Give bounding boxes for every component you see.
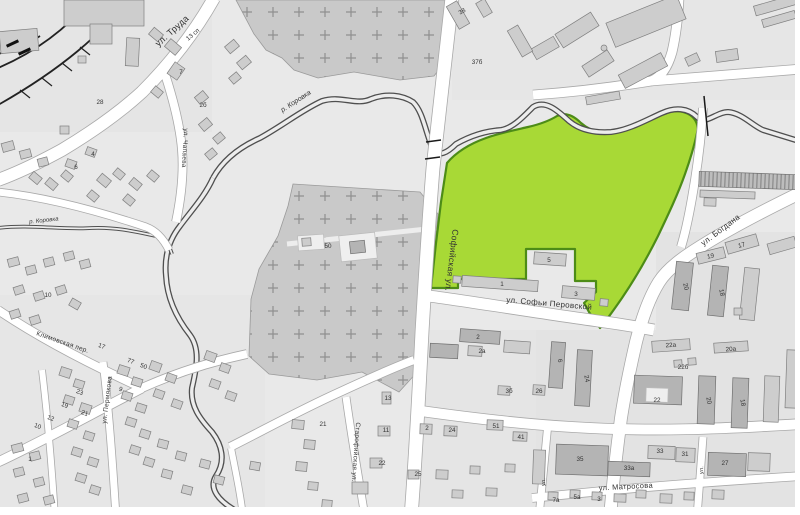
building-number: 22б [678,363,689,371]
building [614,494,626,502]
building-number: 1 [500,281,504,288]
building [352,482,368,494]
building-number: 7 [179,69,183,76]
building-number: 22а [665,342,676,350]
building [470,466,480,474]
building [636,490,646,498]
building-number: 10 [44,292,52,299]
building-number: 21 [319,421,327,428]
building [125,38,139,67]
building [600,299,609,307]
building [660,494,672,503]
building [349,240,365,254]
building-number: 4 [91,151,95,158]
building [699,171,796,189]
building-number: 26 [535,388,543,395]
building-number: 3 [574,291,578,298]
building-number: 6 [74,164,78,171]
building-number: 33а [624,465,635,472]
building-number: 25 [414,471,422,478]
building [748,453,771,472]
building [304,440,316,450]
building-number: 37б [472,58,483,66]
building [548,342,565,389]
building [296,462,308,472]
building-number: 1 [28,456,32,463]
building-number: 5 [547,257,551,264]
building [452,490,463,498]
building-number: 24 [448,427,456,434]
building [504,340,531,354]
building [60,126,69,134]
street-label: ул. [541,478,547,487]
building-number: 31 [681,451,689,458]
building-number: 5а [573,494,581,501]
building [430,343,459,358]
building-number: 41 [517,434,525,441]
building [0,28,39,53]
building [302,238,312,247]
building-number: 2б [199,101,207,109]
building [486,488,497,496]
building [292,419,305,429]
building [763,376,780,422]
building-number: 3 [597,496,601,503]
city-map: 282б13 сп7463837б501352171920186242622а2… [0,0,800,515]
building [249,461,260,471]
building-number: 7а [552,497,560,504]
street-label: ул. [699,466,705,475]
building-number: 11 [383,427,390,434]
map-screenshot: 282б13 сп7463837б501352171920186242622а2… [0,0,800,515]
building-number: 2 [476,334,480,341]
building-number: 3б [505,387,513,395]
margin [0,507,800,515]
building [436,470,448,479]
building-number: 2а [478,348,486,355]
building [734,308,742,315]
building [704,198,716,206]
building-number: 33 [656,448,664,455]
building-number: 28 [96,99,104,106]
building-number: 2 [425,425,429,432]
building-number: 20а [725,346,736,354]
building-number: 51 [492,423,500,430]
building-number: 22 [653,397,661,404]
margin [795,0,800,515]
building [90,24,112,44]
building [688,358,696,366]
building [64,0,144,26]
building-number: 13 [384,395,392,402]
building [712,490,724,499]
building [684,492,694,500]
building [562,286,596,301]
building [78,56,86,63]
building-number: 27 [721,460,729,467]
building [505,464,515,472]
building-round [601,45,607,51]
building [308,482,319,491]
building [460,329,501,345]
building-number: 50 [324,243,332,250]
building-number: 35 [576,456,584,463]
building-number: 22 [378,460,386,467]
